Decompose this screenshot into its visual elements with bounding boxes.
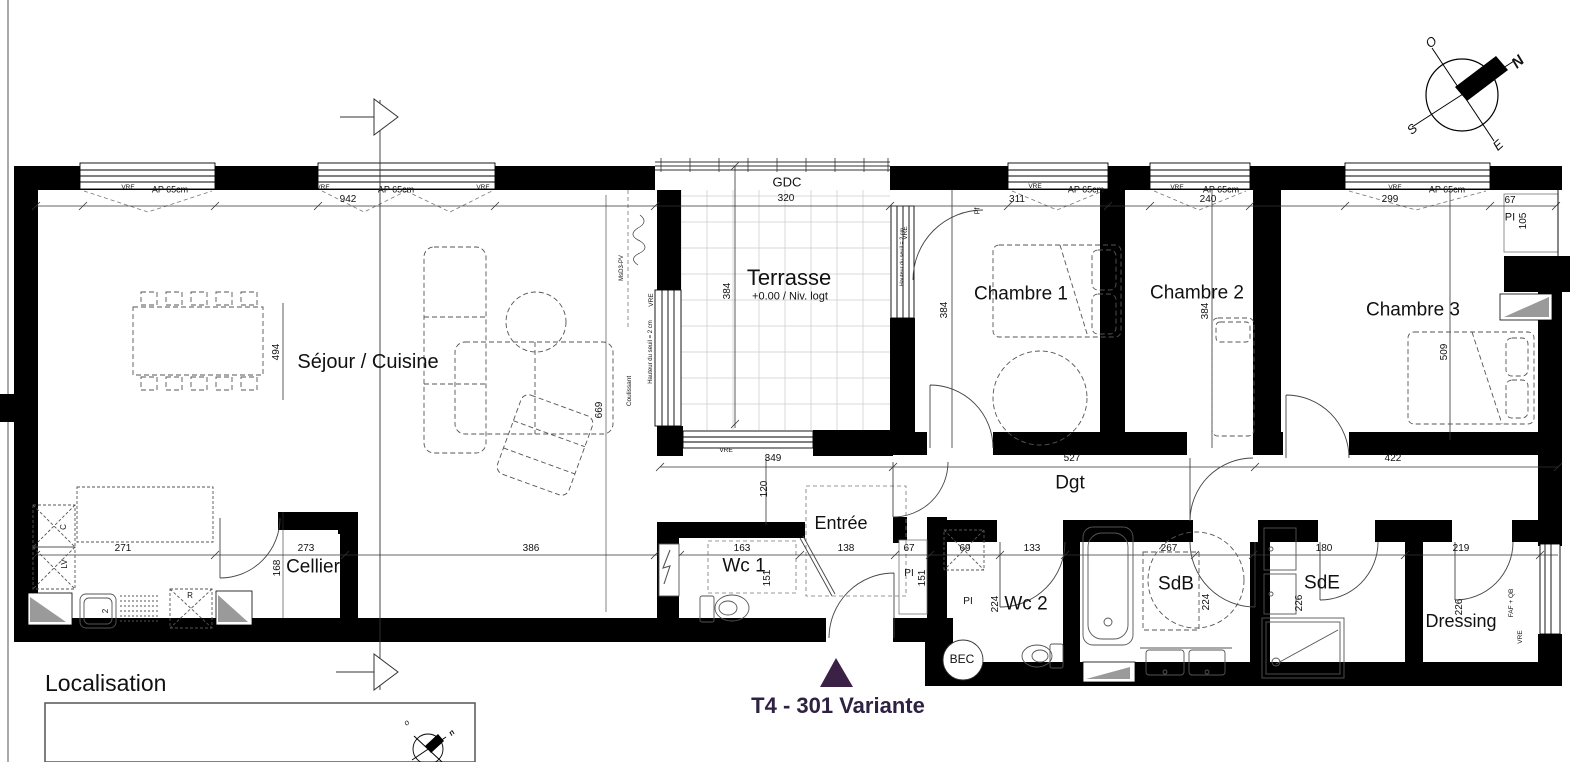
window-terrasse-bottom — [683, 431, 813, 448]
sdb-door — [1190, 542, 1255, 607]
chambre1-pf-swing — [913, 210, 983, 280]
bathtub — [1083, 527, 1133, 645]
mini-compass-icon — [412, 734, 446, 762]
pouf — [506, 292, 566, 352]
armchair — [495, 393, 595, 498]
dgt-door — [893, 462, 948, 517]
dressing-door — [1455, 542, 1513, 600]
toilet-wc1 — [700, 595, 749, 622]
entree-zone-outline — [806, 486, 906, 596]
chambre2-door — [1190, 458, 1253, 521]
bed-chambre2 — [1212, 318, 1254, 436]
dimension-lines — [32, 162, 1562, 618]
bed-chambre3 — [1408, 332, 1534, 424]
dining-table — [133, 292, 263, 390]
sde-door — [1320, 542, 1378, 600]
terrace-grid — [681, 190, 890, 430]
windows — [80, 163, 1560, 634]
sofa — [424, 247, 613, 453]
technical-duct — [659, 544, 679, 596]
window-sejour-2 — [318, 163, 495, 189]
variant-triangle — [820, 658, 853, 687]
scribble-annotation — [633, 215, 645, 265]
sdb-clearance — [1143, 532, 1244, 630]
cellier-door — [220, 518, 280, 578]
chambre3-door — [1286, 395, 1349, 458]
localisation-heading: Localisation — [45, 670, 166, 697]
wc1-clearance-outline — [708, 541, 796, 593]
furniture — [33, 245, 1534, 678]
window-chambre1 — [1008, 163, 1108, 189]
wc2-door — [1000, 542, 1065, 607]
bec-symbol — [943, 640, 983, 680]
chambre1-door — [930, 385, 993, 448]
chambre1-rug — [993, 351, 1087, 445]
floor-plan-sheet: Séjour / CuisineCellierTerrasse+0.00 / N… — [0, 0, 1575, 762]
window-dressing — [1540, 544, 1560, 634]
terrace-railing — [655, 158, 890, 172]
wc1-door-leaf — [800, 536, 835, 596]
compass-icon — [1412, 48, 1514, 141]
floor-plan-drawing — [0, 0, 1575, 762]
window-sejour-1 — [80, 163, 215, 189]
window-chambre3 — [1345, 163, 1490, 189]
window-terrasse-left — [655, 290, 681, 426]
window-chambre2 — [1150, 163, 1250, 189]
cellier-post — [338, 518, 354, 534]
entrance-door-gap — [826, 614, 893, 644]
localisation-box — [45, 703, 475, 762]
plan-title: T4 - 301 Variante — [718, 693, 958, 719]
window-chambre1-pf — [891, 206, 914, 318]
